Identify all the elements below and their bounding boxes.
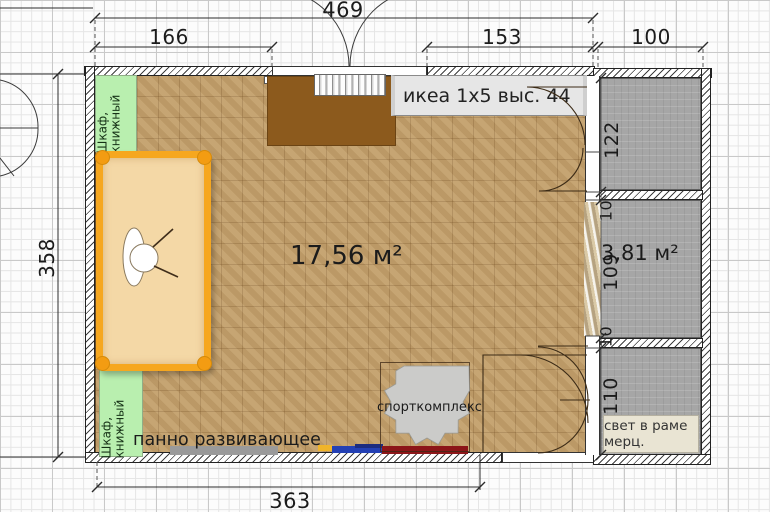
neighbor-door-arc [0,80,38,176]
wall-left [85,66,95,462]
dim-label-469: 469 [318,0,368,22]
mattress [103,158,204,364]
bed-knob [95,150,110,165]
ikea-shelf[interactable]: икеа 1x5 выс. 44 [391,75,587,116]
bookcase-top-label: Шкаф, книжный [96,76,138,153]
dim-label-110: 110 [600,366,622,426]
ikea-shelf-label: икеа 1x5 выс. 44 [395,85,571,107]
bed[interactable] [96,151,211,371]
dim-label-10-top: 10 [597,194,616,228]
dim-label-153: 153 [477,25,527,49]
dim-label-100: 100 [626,25,676,49]
dim-label-166: 166 [144,25,194,49]
radiator[interactable] [314,74,386,96]
dim-label-122: 122 [601,110,623,170]
bed-knob [197,150,212,165]
room-area-main: 17,56 м² [290,241,403,271]
dim-label-358: 358 [35,223,57,293]
sport-complex-label: спорткомплекс [377,400,473,415]
wing-wall-top [593,68,712,78]
bed-knob [95,356,110,371]
dim-label-10-bottom: 10 [597,320,616,354]
bed-knob [197,356,212,371]
wing-wall-bottom [593,454,711,465]
dim-label-109: 109 [600,242,622,302]
dim-label-363: 363 [265,489,315,512]
developmental-panel-label: панно развивающее [133,430,321,450]
wing-wall-right [701,68,711,465]
bookcase-top[interactable]: Шкаф, книжный [95,75,137,152]
floor-plan-canvas: Шкаф, книжный Шкаф, книжный икеа 1x5 выс… [0,0,770,512]
